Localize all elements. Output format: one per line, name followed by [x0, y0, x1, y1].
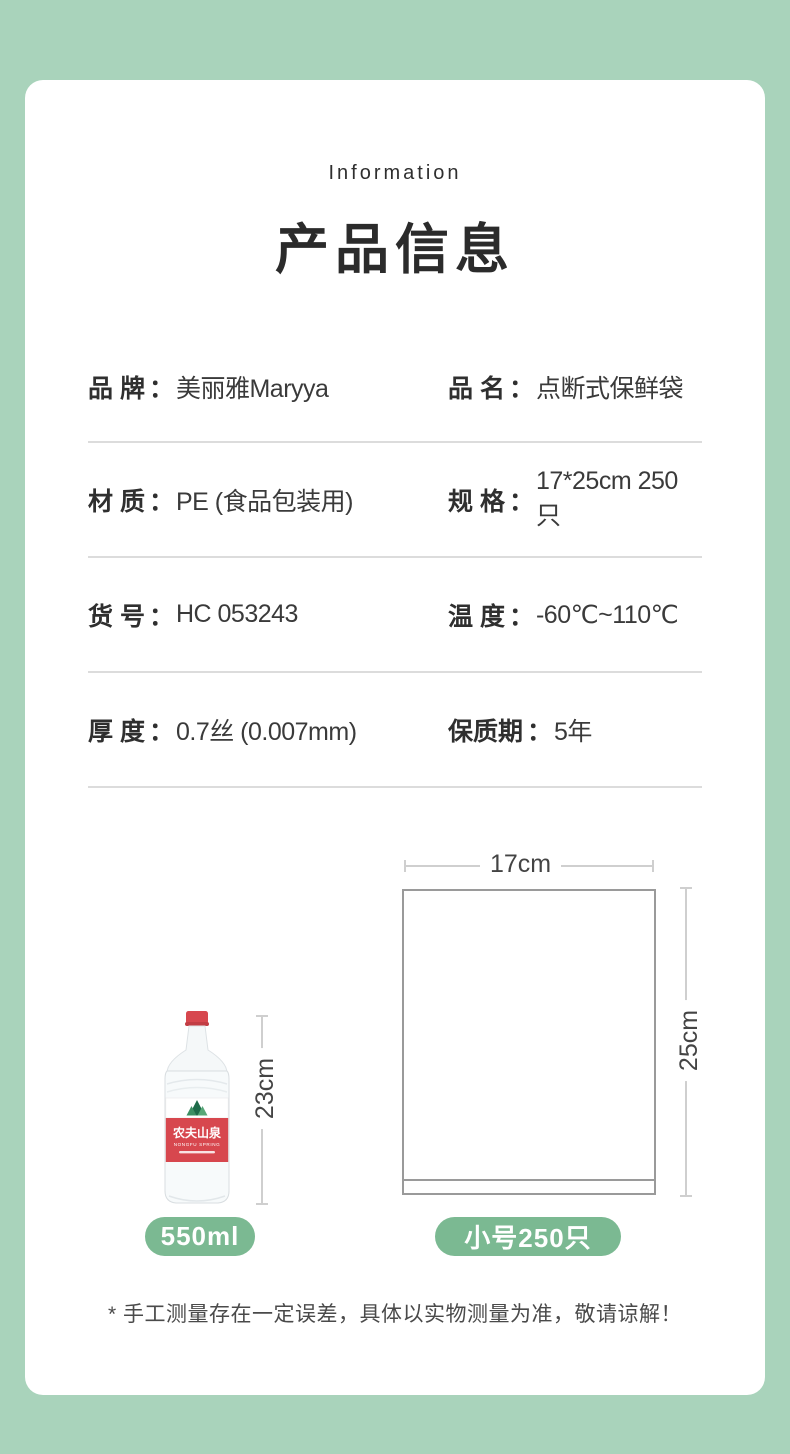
footnote: * 手工测量存在一定误差，具体以实物测量为准，敬请谅解！ [25, 1298, 765, 1328]
dim-tick [256, 1015, 268, 1017]
bottle-cap-ring [185, 1022, 209, 1026]
dim-tick [256, 1203, 268, 1205]
bag-illustration [402, 889, 656, 1195]
volume-badge: 550ml [145, 1217, 255, 1256]
bag-width-label: 17cm [480, 846, 561, 883]
nongfu-spring-bottle-image: 农夫山泉 NONGFU SPRING [159, 1010, 235, 1206]
bottle-label-red-band [166, 1118, 228, 1162]
bottle-label-fineprint [179, 1151, 215, 1153]
bag-seal-line [404, 1179, 654, 1181]
dim-tick [680, 1195, 692, 1197]
bag-height-label: 25cm [671, 1000, 708, 1081]
dim-tick [652, 860, 654, 872]
bottle-neck [167, 1026, 227, 1073]
product-info-card: Information 产品信息 品 牌 ： 美丽雅Maryya 品 名 ： 点… [25, 80, 765, 1395]
bottle-brand-en-text: NONGFU SPRING [174, 1142, 221, 1147]
bottle-height-label: 23cm [247, 1048, 284, 1129]
page-background: Information 产品信息 品 牌 ： 美丽雅Maryya 品 名 ： 点… [0, 0, 790, 1454]
dim-tick [404, 860, 406, 872]
bottle-brand-text: 农夫山泉 [172, 1125, 222, 1140]
size-diagram: 农夫山泉 NONGFU SPRING 23cm 17cm [25, 80, 765, 1395]
bottle-illustration-svg: 农夫山泉 NONGFU SPRING [159, 1010, 235, 1206]
dim-tick [680, 887, 692, 889]
size-badge: 小号250只 [435, 1217, 621, 1256]
